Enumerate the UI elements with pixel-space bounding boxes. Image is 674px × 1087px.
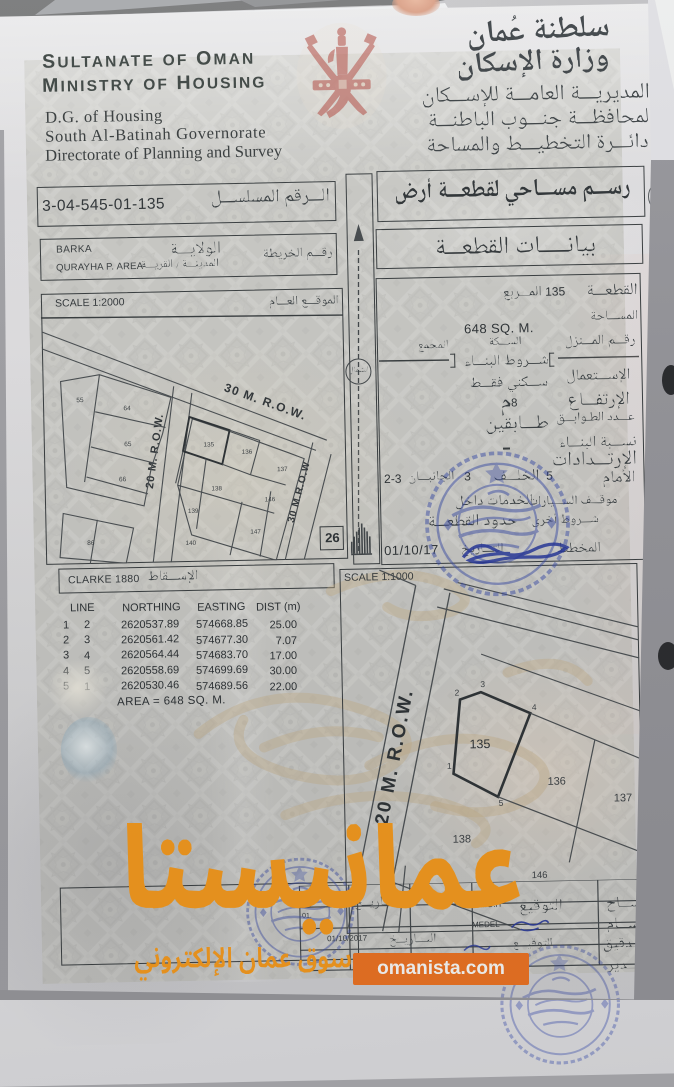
svg-text:66: 66 (119, 476, 127, 483)
svg-text:1: 1 (446, 761, 451, 771)
svg-text:136: 136 (241, 449, 252, 456)
svg-text:139: 139 (188, 508, 199, 515)
svg-text:4: 4 (531, 702, 536, 712)
svg-text:135: 135 (203, 442, 214, 449)
svg-text:3: 3 (480, 679, 485, 689)
svg-text:137: 137 (613, 792, 632, 804)
svg-text:136: 136 (547, 775, 566, 787)
svg-text:55: 55 (76, 397, 84, 404)
svg-text:138: 138 (211, 485, 222, 492)
svg-text:146: 146 (264, 496, 275, 503)
svg-text:2: 2 (454, 688, 459, 698)
svg-text:30 M.R.O.W: 30 M.R.O.W (286, 460, 313, 524)
svg-text:65: 65 (124, 441, 132, 448)
svg-text:135: 135 (469, 737, 490, 751)
svg-text:64: 64 (123, 405, 131, 412)
svg-text:20 M. R.O.W.: 20 M. R.O.W. (371, 687, 418, 827)
svg-text:147: 147 (250, 529, 261, 536)
svg-text:146: 146 (531, 870, 547, 881)
svg-text:140: 140 (185, 540, 196, 547)
svg-text:137: 137 (277, 466, 288, 473)
svg-text:86: 86 (87, 540, 95, 547)
